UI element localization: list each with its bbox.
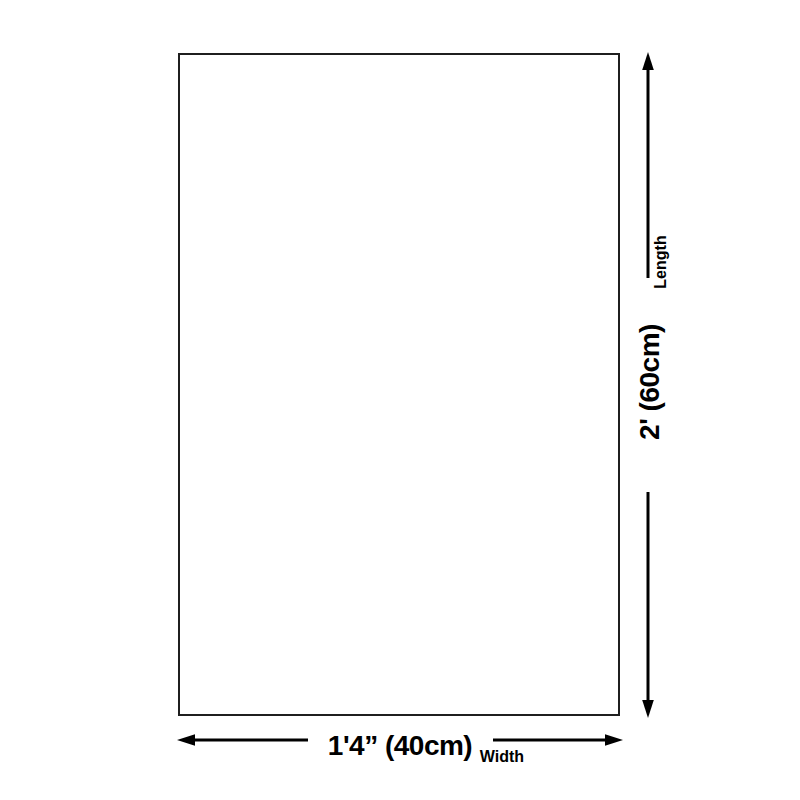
product-outline	[178, 53, 620, 716]
width-value: 1'4” (40cm)	[328, 730, 472, 762]
width-axis-label: Width	[480, 748, 524, 766]
arrow-right-head-icon	[605, 734, 623, 746]
length-value: 2' (60cm)	[634, 324, 666, 440]
length-axis-label: Length	[652, 235, 670, 288]
arrow-down-head-icon	[642, 700, 654, 718]
arrow-up-head-icon	[642, 52, 654, 70]
arrow-left-head-icon	[177, 734, 195, 746]
size-diagram: Length 2' (60cm) 1'4” (40cm) Width	[0, 0, 800, 800]
